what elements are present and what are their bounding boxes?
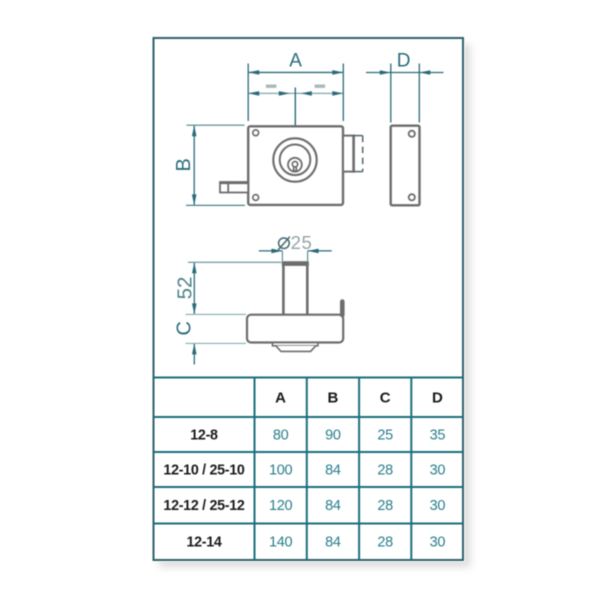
- svg-text:B: B: [173, 158, 195, 171]
- svg-text:D: D: [397, 50, 411, 71]
- svg-text:12-14: 12-14: [186, 534, 221, 550]
- svg-text:84: 84: [325, 462, 341, 478]
- svg-text:28: 28: [377, 534, 393, 550]
- svg-text:30: 30: [430, 462, 446, 478]
- svg-text:140: 140: [269, 534, 293, 550]
- svg-text:28: 28: [377, 498, 393, 514]
- svg-text:12-12 / 25-12: 12-12 / 25-12: [163, 498, 244, 514]
- svg-text:84: 84: [325, 498, 341, 514]
- svg-text:12-8: 12-8: [190, 427, 218, 443]
- svg-text:120: 120: [269, 498, 293, 514]
- svg-text:80: 80: [273, 427, 289, 443]
- svg-text:35: 35: [430, 427, 446, 443]
- svg-text:12-10 / 25-10: 12-10 / 25-10: [163, 462, 244, 478]
- svg-text:28: 28: [377, 462, 393, 478]
- svg-text:84: 84: [325, 534, 341, 550]
- svg-text:25: 25: [291, 232, 313, 253]
- svg-text:30: 30: [430, 534, 446, 550]
- svg-text:A: A: [289, 50, 302, 71]
- svg-text:C: C: [173, 321, 195, 335]
- svg-text:90: 90: [325, 427, 341, 443]
- svg-text:A: A: [275, 390, 286, 407]
- svg-text:30: 30: [430, 498, 446, 514]
- svg-text:100: 100: [269, 462, 293, 478]
- svg-text:52: 52: [173, 277, 196, 300]
- svg-text:25: 25: [377, 427, 393, 443]
- svg-text:C: C: [380, 390, 391, 407]
- svg-text:B: B: [327, 390, 338, 407]
- svg-text:D: D: [432, 390, 443, 407]
